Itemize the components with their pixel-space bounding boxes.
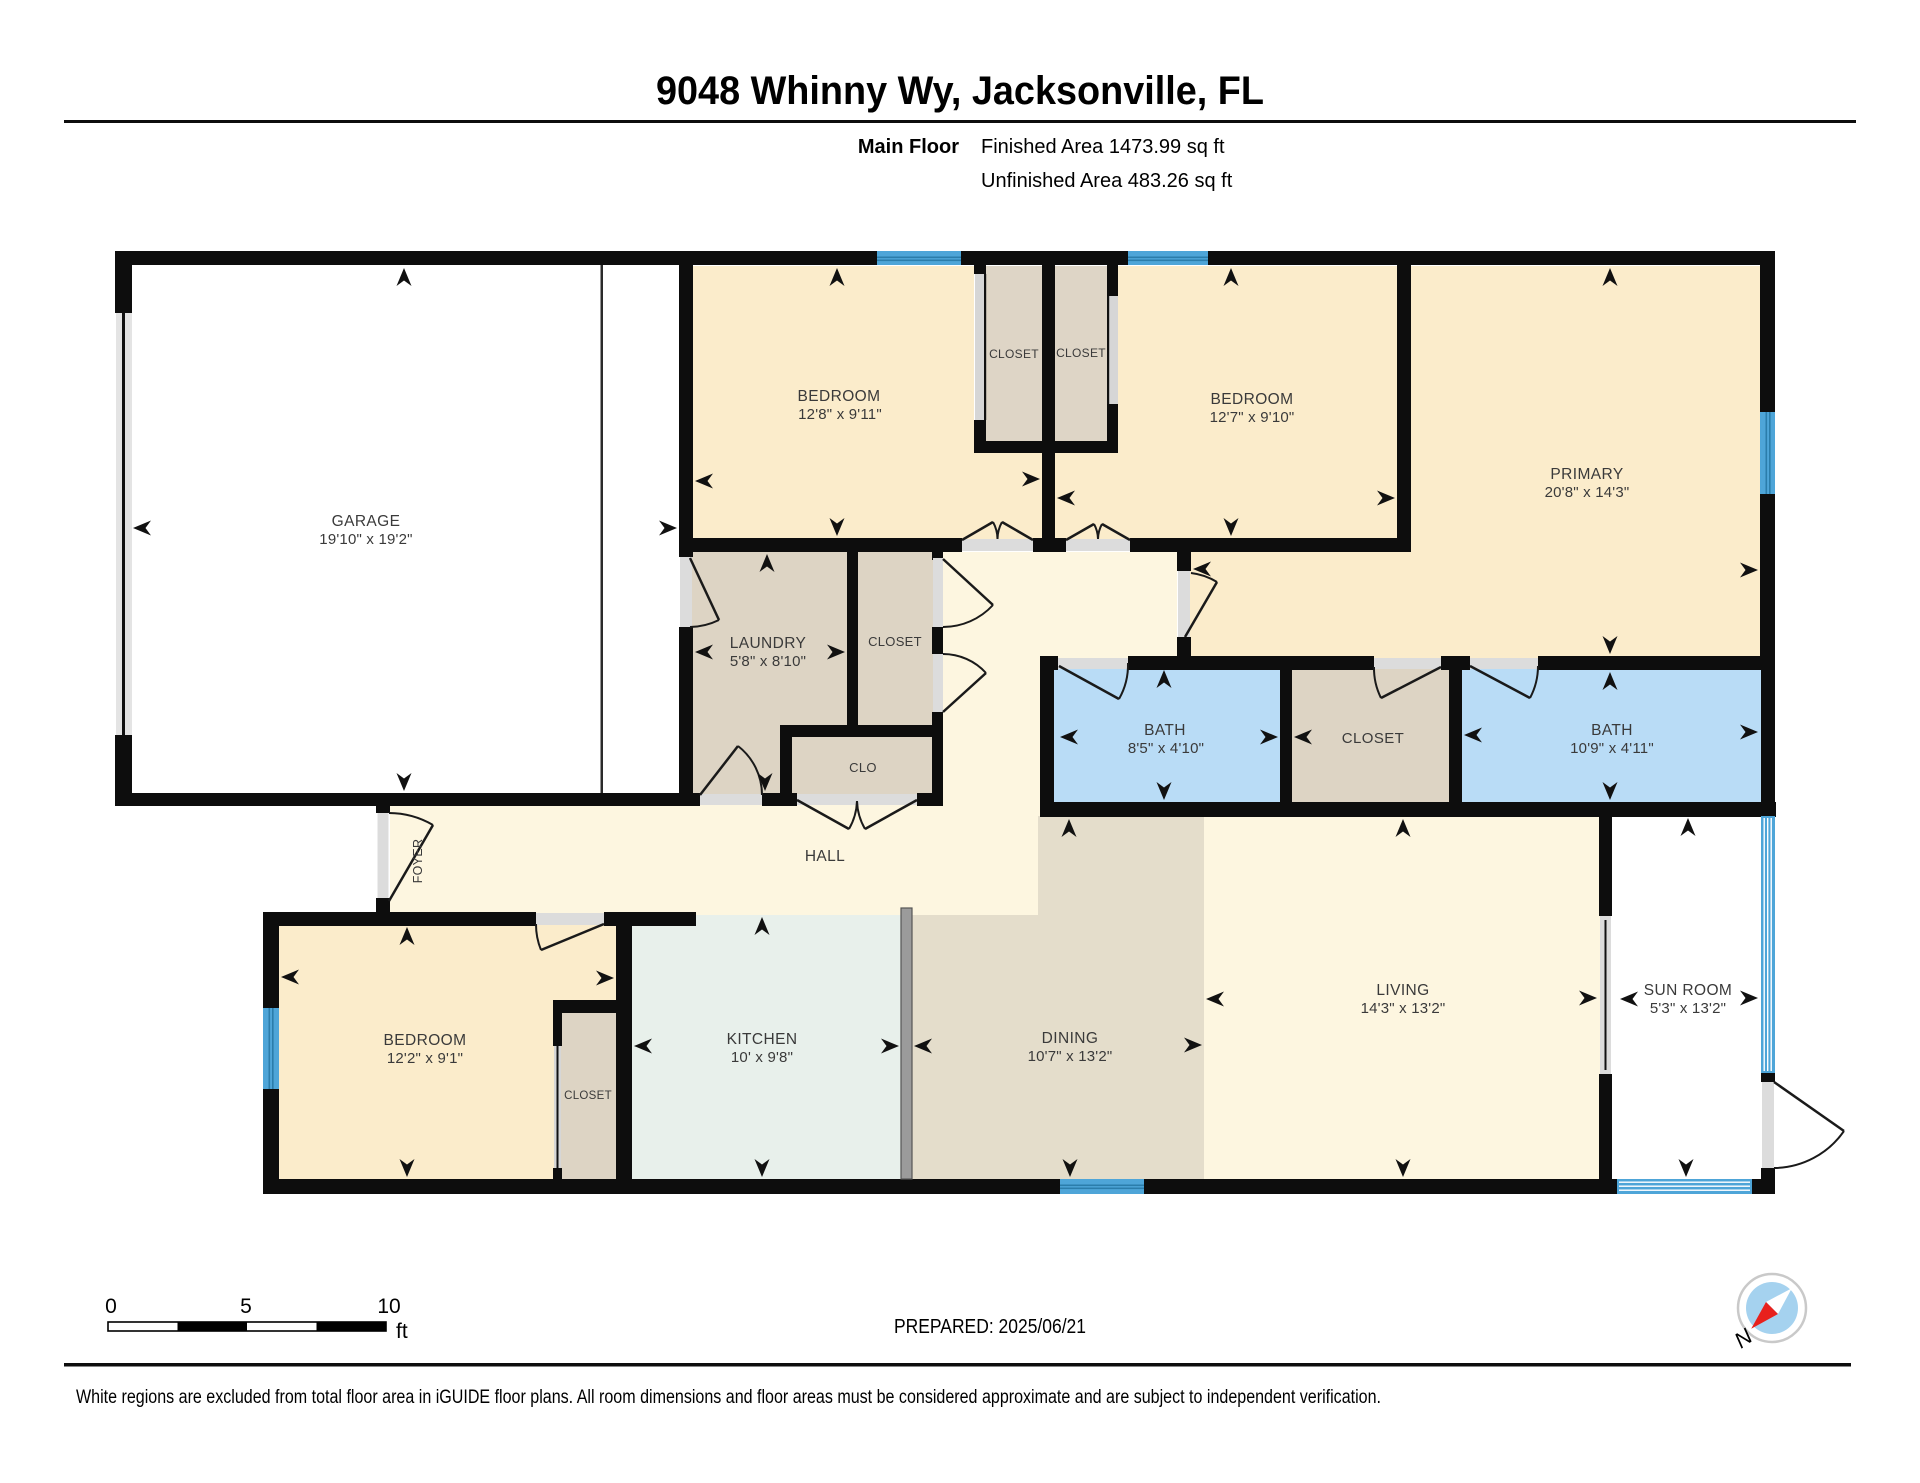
svg-text:12'2" x 9'1": 12'2" x 9'1" [387,1050,463,1067]
svg-text:20'8" x 14'3": 20'8" x 14'3" [1545,484,1630,501]
svg-text:CLOSET: CLOSET [1342,730,1404,747]
svg-text:9048 Whinny Wy, Jacksonville,: 9048 Whinny Wy, Jacksonville, FL [656,69,1264,113]
svg-text:10: 10 [377,1295,400,1318]
svg-text:BEDROOM: BEDROOM [384,1032,467,1049]
svg-text:5'8" x 8'10": 5'8" x 8'10" [730,653,806,670]
svg-text:Unfinished Area 483.26 sq ft: Unfinished Area 483.26 sq ft [981,170,1233,192]
svg-text:White regions are excluded fro: White regions are excluded from total fl… [76,1387,1381,1408]
svg-text:5'3" x 13'2": 5'3" x 13'2" [1650,1000,1726,1017]
svg-text:PRIMARY: PRIMARY [1550,466,1623,483]
svg-text:14'3" x 13'2": 14'3" x 13'2" [1361,1000,1446,1017]
svg-text:CLOSET: CLOSET [564,1090,612,1102]
svg-text:CLOSET: CLOSET [989,347,1039,361]
svg-text:BATH: BATH [1144,722,1186,739]
svg-text:KITCHEN: KITCHEN [727,1031,798,1048]
svg-text:0: 0 [105,1295,117,1318]
svg-text:LIVING: LIVING [1376,982,1429,999]
svg-text:Finished Area 1473.99 sq ft: Finished Area 1473.99 sq ft [981,136,1225,158]
svg-text:12'7" x 9'10": 12'7" x 9'10" [1210,409,1295,426]
svg-text:10' x 9'8": 10' x 9'8" [731,1049,793,1066]
svg-text:HALL: HALL [805,848,845,865]
svg-text:GARAGE: GARAGE [332,513,401,530]
svg-text:19'10" x 19'2": 19'10" x 19'2" [319,531,412,548]
svg-text:5: 5 [240,1295,252,1318]
svg-text:BEDROOM: BEDROOM [798,388,881,405]
svg-text:CLOSET: CLOSET [868,634,922,649]
svg-text:CLOSET: CLOSET [1056,346,1106,360]
svg-text:10'9" x 4'11": 10'9" x 4'11" [1570,740,1654,757]
svg-text:10'7" x 13'2": 10'7" x 13'2" [1028,1048,1113,1065]
svg-text:SUN ROOM: SUN ROOM [1644,982,1732,999]
svg-text:FOYER: FOYER [411,839,425,884]
svg-text:BATH: BATH [1591,722,1633,739]
svg-text:LAUNDRY: LAUNDRY [730,635,807,652]
svg-text:PREPARED: 2025/06/21: PREPARED: 2025/06/21 [894,1316,1086,1338]
svg-text:Main Floor: Main Floor [858,136,959,158]
svg-text:BEDROOM: BEDROOM [1211,391,1294,408]
svg-text:12'8" x 9'11": 12'8" x 9'11" [798,406,882,423]
svg-text:CLO: CLO [849,760,877,775]
svg-text:8'5" x 4'10": 8'5" x 4'10" [1128,740,1204,757]
svg-text:ft: ft [396,1320,408,1343]
svg-text:DINING: DINING [1042,1030,1099,1047]
